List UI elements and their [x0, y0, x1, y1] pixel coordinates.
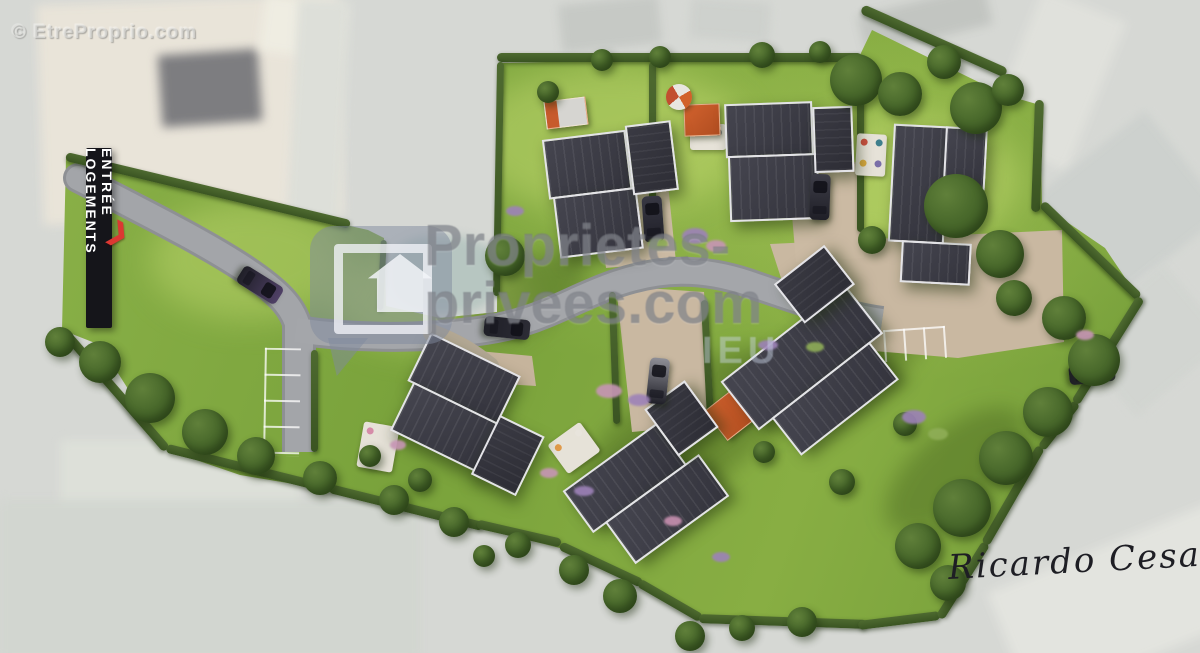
tree [933, 479, 991, 537]
tree [79, 341, 121, 383]
car-windshield [260, 281, 278, 299]
tree [408, 468, 432, 492]
site-plan-canvas: © EtreProprio.com Proprietes- privees.co… [0, 0, 1200, 653]
roof-panel [728, 153, 820, 222]
tree [537, 81, 559, 103]
car-rear-window [812, 206, 826, 214]
tree [237, 437, 275, 475]
tree [359, 445, 381, 467]
parasol [666, 84, 692, 110]
tree [829, 469, 855, 495]
tree [809, 41, 831, 63]
tree [439, 507, 469, 537]
garden-shed [683, 103, 720, 136]
flower-bush [806, 342, 824, 352]
brand-watermark-line2: privees.com [424, 270, 763, 337]
tree [675, 621, 705, 651]
car-rear-window [242, 270, 256, 286]
tree [996, 280, 1032, 316]
tree [591, 49, 613, 71]
hedge [699, 614, 867, 629]
tree [45, 327, 75, 357]
brand-watermark-line1: Proprietes- [424, 212, 730, 279]
patio-chair [874, 160, 881, 167]
flower-bush [712, 552, 730, 562]
roof-panel [812, 106, 854, 173]
photo-credit-watermark: © EtreProprio.com [12, 22, 197, 44]
tree [787, 607, 817, 637]
patio-chair [553, 443, 563, 453]
patio-chair [875, 139, 882, 146]
flower-bush [928, 428, 948, 440]
brand-watermark-fragment: IEU [702, 330, 780, 373]
car [235, 264, 285, 305]
tree [559, 555, 589, 585]
house-4 [375, 331, 563, 512]
tree [649, 46, 671, 68]
tree [924, 174, 988, 238]
tree [830, 54, 882, 106]
patio-chair [574, 428, 584, 438]
tree [603, 579, 637, 613]
flower-bush [596, 384, 622, 398]
parking-markings [263, 348, 301, 457]
tree [182, 409, 228, 455]
hedge [637, 579, 704, 623]
tree [979, 431, 1033, 485]
flower-bush [1076, 330, 1094, 340]
roof-panel [724, 101, 814, 158]
tree [473, 545, 495, 567]
tree [1023, 387, 1073, 437]
hedge [311, 350, 318, 452]
hedge [858, 611, 940, 630]
car-rear-window [649, 389, 664, 398]
car-windshield [813, 181, 827, 193]
flower-bush [628, 394, 650, 406]
tree [895, 523, 941, 569]
tree [878, 72, 922, 116]
flower-bush [574, 486, 594, 496]
patio-chair [860, 138, 867, 145]
car [809, 174, 831, 221]
tree [992, 74, 1024, 106]
tree [303, 461, 337, 495]
hedge [497, 53, 862, 62]
tree [1068, 334, 1120, 386]
car-windshield [651, 364, 666, 377]
tree [858, 226, 886, 254]
tree [927, 45, 961, 79]
tree [749, 42, 775, 68]
roof-panel [900, 240, 972, 286]
flower-bush [390, 440, 406, 450]
house-2 [724, 94, 854, 222]
tree [753, 441, 775, 463]
tree [505, 532, 531, 558]
tree [125, 373, 175, 423]
patio-chair [859, 159, 866, 166]
hedge [1039, 200, 1142, 300]
flower-bush [664, 516, 682, 526]
patio-chair [366, 427, 374, 435]
tree [379, 485, 409, 515]
roof-panel [625, 120, 679, 195]
hedge [1031, 100, 1044, 212]
patio [855, 133, 887, 177]
flower-bush [540, 468, 558, 478]
tree [729, 615, 755, 641]
tree [976, 230, 1024, 278]
flower-bush [902, 410, 926, 424]
